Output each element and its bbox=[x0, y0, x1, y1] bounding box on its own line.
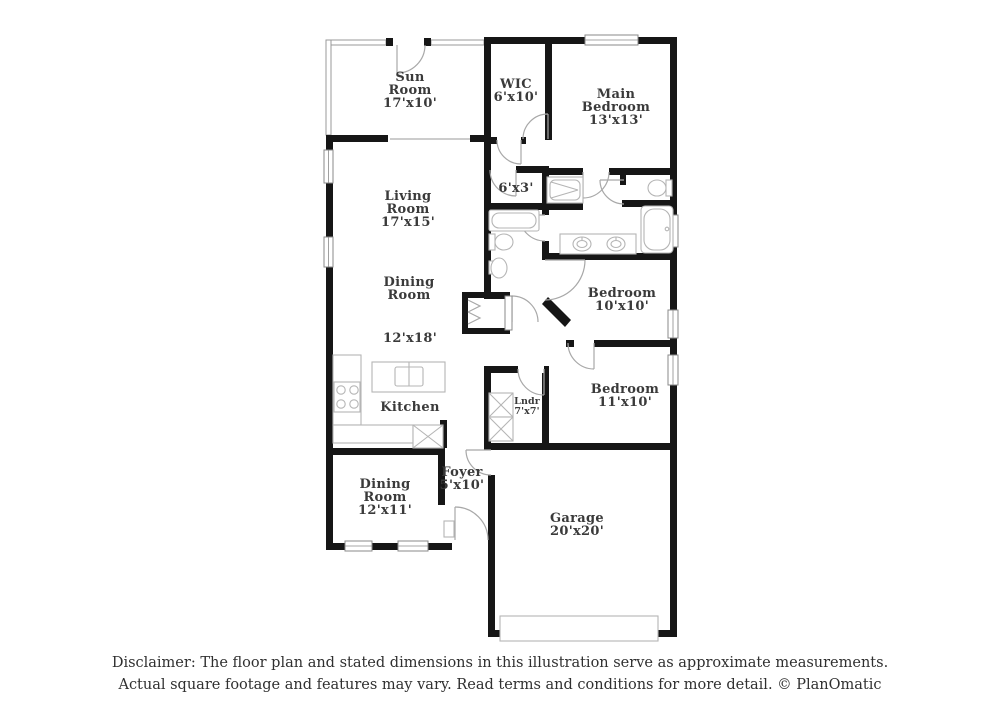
room-label-line: 13'x13' bbox=[582, 114, 650, 127]
closet-opening-frame bbox=[505, 296, 512, 330]
room-label-wic: WIC 6'x10' bbox=[494, 78, 539, 104]
room-label-bedroom-11: Bedroom 11'x10' bbox=[591, 383, 659, 409]
double-vanity-fixture-main-bath bbox=[560, 234, 636, 254]
toilet-fixture-hall-bath bbox=[489, 234, 513, 250]
garage-door-fixture bbox=[500, 616, 658, 641]
washer-dryer-fixture bbox=[489, 393, 513, 441]
room-label-laundry: Lndr 7'x7' bbox=[514, 397, 540, 417]
floor-plan-page: Sun Room 17'x10' WIC 6'x10' Main Bedroom… bbox=[0, 0, 1000, 727]
sink-fixture-hall-bath bbox=[489, 258, 507, 278]
kitchen-island-fixture bbox=[372, 362, 445, 392]
room-label-kitchen: Kitchen bbox=[380, 401, 439, 414]
window bbox=[398, 541, 428, 551]
room-label-dining-room: Dining Room bbox=[384, 276, 435, 302]
disclaimer: Disclaimer: The floor plan and stated di… bbox=[0, 652, 1000, 696]
room-label-closet-6x3: 6'x3' bbox=[498, 182, 533, 195]
shower-fixture-main-bath bbox=[547, 177, 583, 203]
laundry-door bbox=[518, 369, 544, 395]
hall-center-door bbox=[512, 296, 538, 322]
wic-door bbox=[523, 114, 548, 139]
room-label-bedroom-10: Bedroom 10'x10' bbox=[588, 287, 656, 313]
room-label-line: 12'x11' bbox=[358, 504, 412, 517]
window bbox=[668, 355, 678, 385]
disclaimer-line-1: Disclaimer: The floor plan and stated di… bbox=[0, 652, 1000, 674]
toilet-fixture-water-closet bbox=[648, 180, 672, 196]
window bbox=[668, 310, 678, 338]
room-label-line: 10'x10' bbox=[588, 300, 656, 313]
floor-plan-svg bbox=[0, 0, 1000, 727]
pantry-cabinet-fixture bbox=[413, 425, 443, 448]
bedroom-10-door bbox=[545, 260, 585, 300]
window bbox=[324, 237, 333, 267]
room-label-foyer: Foyer 5'x10' bbox=[440, 466, 485, 492]
room-label-line: 20'x20' bbox=[550, 525, 604, 538]
room-label-line: 6'x3' bbox=[498, 182, 533, 195]
room-label-dining-room-2: Dining Room 12'x11' bbox=[358, 478, 412, 517]
front-door bbox=[455, 507, 488, 540]
window bbox=[585, 35, 638, 45]
bathtub-fixture-main-bath bbox=[641, 206, 673, 253]
room-label-line: 17'x15' bbox=[381, 216, 435, 229]
room-label-sun-room: Sun Room 17'x10' bbox=[383, 71, 437, 110]
room-label-garage: Garage 20'x20' bbox=[550, 512, 604, 538]
room-label-line: 11'x10' bbox=[591, 396, 659, 409]
room-label-living-room: Living Room 17'x15' bbox=[381, 190, 435, 229]
room-label-line: 12'x18' bbox=[383, 332, 437, 345]
window bbox=[345, 541, 372, 551]
hall-door bbox=[497, 140, 521, 164]
bifold-closet-doors bbox=[468, 300, 480, 324]
room-label-line: 17'x10' bbox=[383, 97, 437, 110]
room-label-line: 6'x10' bbox=[494, 91, 539, 104]
window bbox=[324, 150, 333, 183]
disclaimer-line-2: Actual square footage and features may v… bbox=[0, 674, 1000, 696]
room-label-line: 7'x7' bbox=[514, 407, 540, 417]
room-label-main-bedroom: Main Bedroom 13'x13' bbox=[582, 88, 650, 127]
sun-room-door bbox=[397, 45, 425, 73]
bathtub-fixture-hall-bath bbox=[489, 210, 539, 231]
room-label-dining-room-dims: 12'x18' bbox=[383, 332, 437, 345]
room-label-line: Kitchen bbox=[380, 401, 439, 414]
room-label-line: 5'x10' bbox=[440, 479, 485, 492]
room-label-line: Room bbox=[384, 289, 435, 302]
front-door-sidelight bbox=[444, 521, 454, 537]
